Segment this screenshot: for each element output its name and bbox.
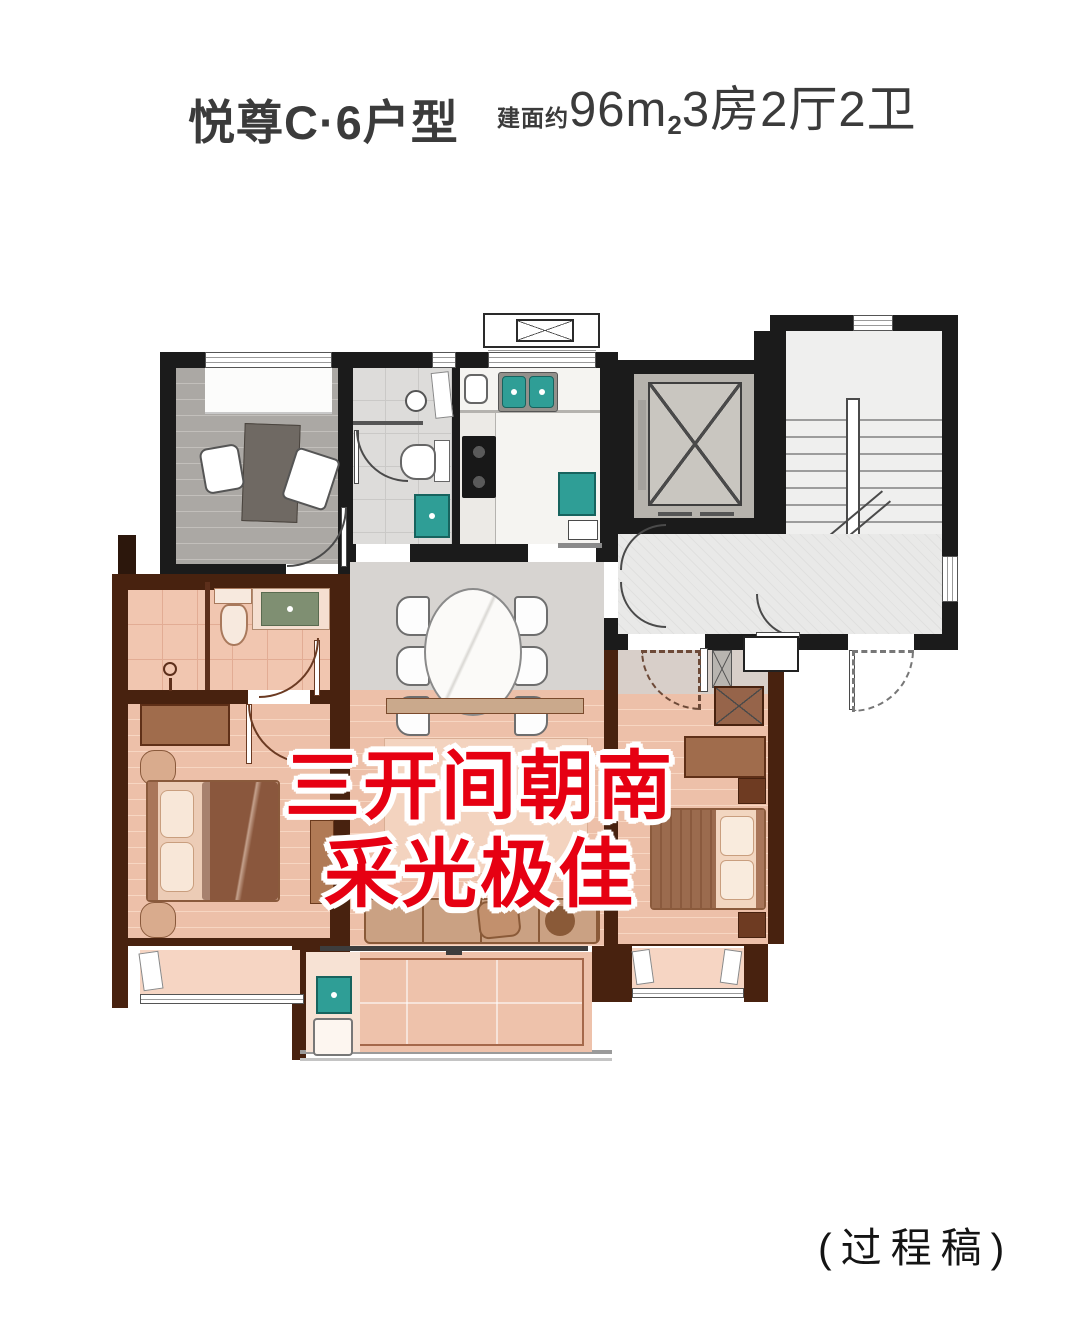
draft-note: (过程稿)	[818, 1214, 1013, 1274]
kitchen-jar	[464, 374, 488, 404]
washing-machine	[313, 1018, 353, 1056]
kitchen-sink-right	[529, 376, 554, 408]
window	[853, 315, 893, 331]
wall	[410, 544, 528, 562]
balcony-railing	[300, 1058, 612, 1061]
door-leaf	[568, 520, 598, 540]
shower-head-icon	[169, 678, 172, 691]
wall	[914, 634, 958, 650]
wall	[744, 944, 768, 1002]
wall	[592, 944, 632, 1002]
wall	[942, 315, 958, 556]
study-chair	[198, 443, 245, 495]
bay-window-sill	[140, 994, 304, 1004]
wall	[754, 331, 786, 534]
highlight-text: 三开间朝南 采光极佳	[120, 742, 840, 918]
dining-table	[424, 588, 522, 716]
bay-window-sill	[632, 988, 744, 998]
window	[488, 352, 596, 368]
ac-platform	[743, 636, 799, 672]
window	[432, 352, 456, 368]
bath-partition	[205, 582, 210, 690]
bath-vanity	[414, 494, 450, 538]
wardrobe	[140, 704, 230, 746]
shower-partition	[353, 421, 423, 425]
wall	[618, 360, 634, 518]
study-bay-window	[205, 368, 332, 414]
wall	[602, 634, 628, 650]
wall	[600, 352, 618, 562]
floorplan-poster: 悦尊C·6户型 建面约96m23房2厅2卫	[0, 0, 1079, 1321]
floor-plan	[0, 0, 1079, 1321]
elevator-door	[700, 512, 734, 516]
door-leaf	[700, 648, 708, 692]
wall	[112, 690, 248, 704]
flue-x-icon	[516, 319, 574, 342]
kitchen-sink-left	[502, 376, 526, 408]
stove	[462, 436, 496, 498]
neighbor-door-arc	[852, 650, 914, 712]
laundry-sink	[316, 976, 352, 1014]
duct-icon	[712, 650, 732, 688]
elevator-door	[658, 512, 692, 516]
wall	[618, 360, 770, 374]
duct-icon	[714, 686, 764, 726]
toilet-bowl	[220, 604, 248, 646]
kitchen-threshold	[558, 543, 602, 548]
stair-treads	[786, 404, 942, 546]
elevator-car	[648, 382, 742, 506]
window	[942, 556, 958, 602]
shower-head-icon	[163, 662, 177, 676]
tv-console	[386, 698, 584, 714]
sliding-door	[446, 950, 462, 955]
kitchen-cabinet	[558, 472, 596, 516]
dining-chair	[396, 596, 430, 636]
vanity-basin	[261, 592, 319, 626]
wall	[118, 535, 136, 574]
wall	[770, 315, 853, 331]
elevator-rail	[638, 400, 646, 490]
wall	[128, 938, 304, 946]
wall	[466, 352, 488, 368]
toilet-tank	[434, 440, 450, 482]
highlight-line2: 采光极佳	[120, 830, 840, 918]
wall	[452, 368, 460, 544]
window	[205, 352, 332, 368]
master-bay-window-floor	[140, 950, 300, 994]
wall	[160, 352, 176, 580]
toilet-tank	[214, 588, 252, 604]
wash-basin-icon	[405, 390, 427, 412]
highlight-line1: 三开间朝南	[120, 742, 840, 830]
